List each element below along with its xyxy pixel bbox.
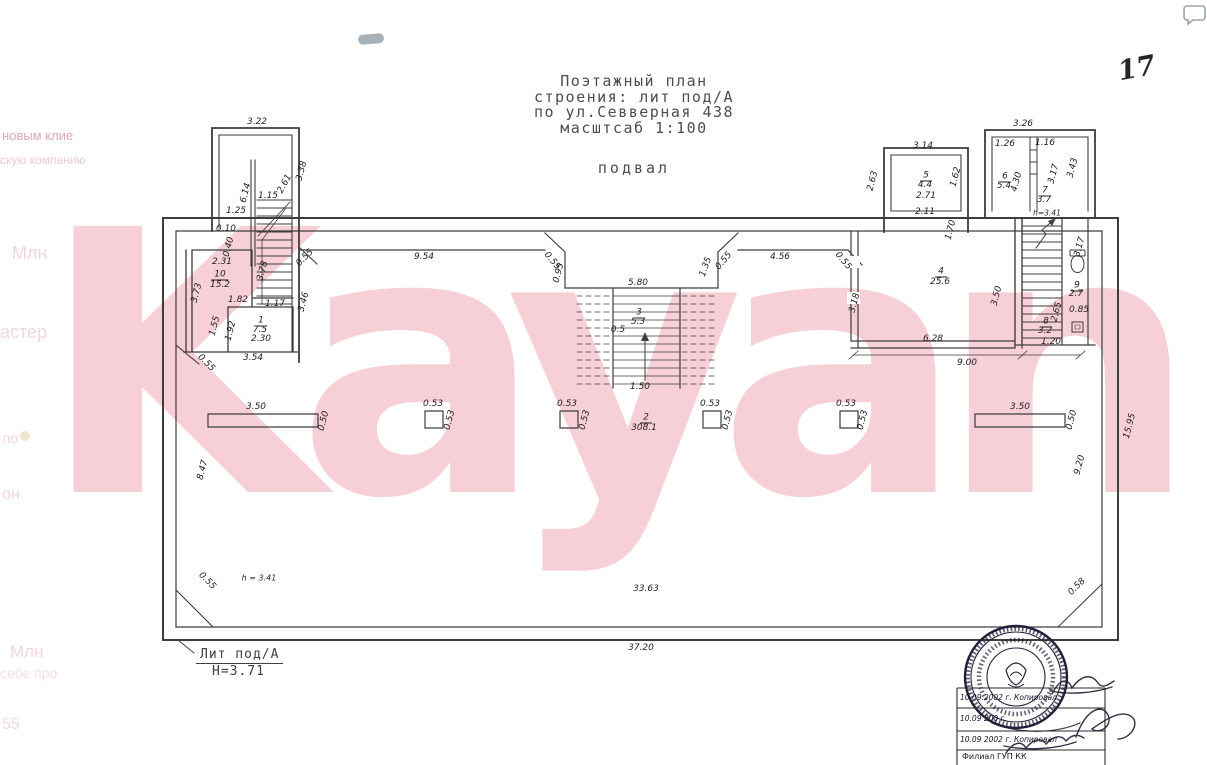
dimension-label: 4.56 [770,252,790,262]
dimension-label: 0.53 [836,399,856,409]
stair-direction-arrow [641,332,649,341]
liter-label: Лит под/А [196,647,283,664]
title-block: Поэтажный план строения: лит под/А по ул… [500,74,768,177]
chat-bubble-icon[interactable] [1183,4,1206,32]
dimension-label: 3.22 [247,117,267,127]
dimension-label: 0.53 [557,399,577,409]
dimension-label: h=3.41 [1033,209,1061,218]
dimension-label: 2.11 [915,207,935,217]
dimension-label: 3.7 [1037,195,1051,205]
dimension-label: 4 [935,267,947,278]
dimension-label: 308.1 [631,423,657,433]
dimension-label: 2.71 [916,191,936,201]
dimension-label: 1.16 [1035,138,1055,148]
dimension-label: 5.80 [628,278,648,288]
dimension-label: 10 [211,270,228,281]
dimension-label: 1.15 [258,191,278,201]
stamp-row-3: 10.09 2002 г. Копировал [960,735,1057,744]
dimension-label: 0.53 [700,399,720,409]
dimension-label: 3.50 [1010,402,1030,412]
dimension-label: 1.20 [1041,337,1061,347]
height-label: Н=3.71 [212,664,265,679]
dimension-label: 3.14 [913,141,933,151]
dimension-label: 1.17 [265,299,285,309]
dimension-label: 2.7 [1069,289,1083,299]
dimension-label: 9.54 [414,252,434,262]
dimension-label: 25.6 [930,277,950,287]
dimension-label: h = 3.41 [242,574,277,583]
title-line-4: масштсаб 1:100 [500,121,768,137]
dimension-label: 4.4 [918,180,932,190]
dimension-label: 9.00 [957,358,977,368]
scanned-floor-plan-page: Kayan новым клиескую компаниюМлнастерлоо… [0,0,1207,765]
sink-icon [1072,322,1083,332]
dimension-label: 1.25 [226,206,246,216]
dimension-label: 1.26 [995,139,1015,149]
dimension-label: 1.50 [630,382,650,392]
dimension-label: 3.2 [1038,326,1052,336]
floor-label: подвал [500,161,768,177]
stamp-row-2: 10.09 200 г. [960,714,1007,723]
dimension-label: 0.5 [611,325,625,335]
dimension-label: 0.85 [1069,305,1089,315]
dimension-label: 5.3 [631,317,645,327]
stamp-row-4: Филиал ГУП КК [962,752,1027,761]
dimension-label: 2 [640,413,652,424]
dimension-label: 3.26 [1013,119,1033,129]
dimension-label: 3.54 [243,353,263,363]
dimension-label: 3.50 [246,402,266,412]
dimension-label: 37.20 [628,643,654,653]
dimension-label: 1.82 [228,295,248,305]
dimension-label: 0.53 [423,399,443,409]
round-seal [965,626,1067,728]
dimension-label: 6.28 [923,334,943,344]
dimension-label: 15.2 [210,280,230,290]
dimension-label: 0.10 [216,224,236,234]
stamp-row-1: 10.09.2002 г. Копировал [960,693,1057,702]
room5-tower [884,148,968,232]
center-stairs [577,288,716,388]
dimension-label: 2.30 [251,334,271,344]
dimension-label: 33.63 [633,584,659,594]
dimension-label: 2.31 [212,257,232,267]
